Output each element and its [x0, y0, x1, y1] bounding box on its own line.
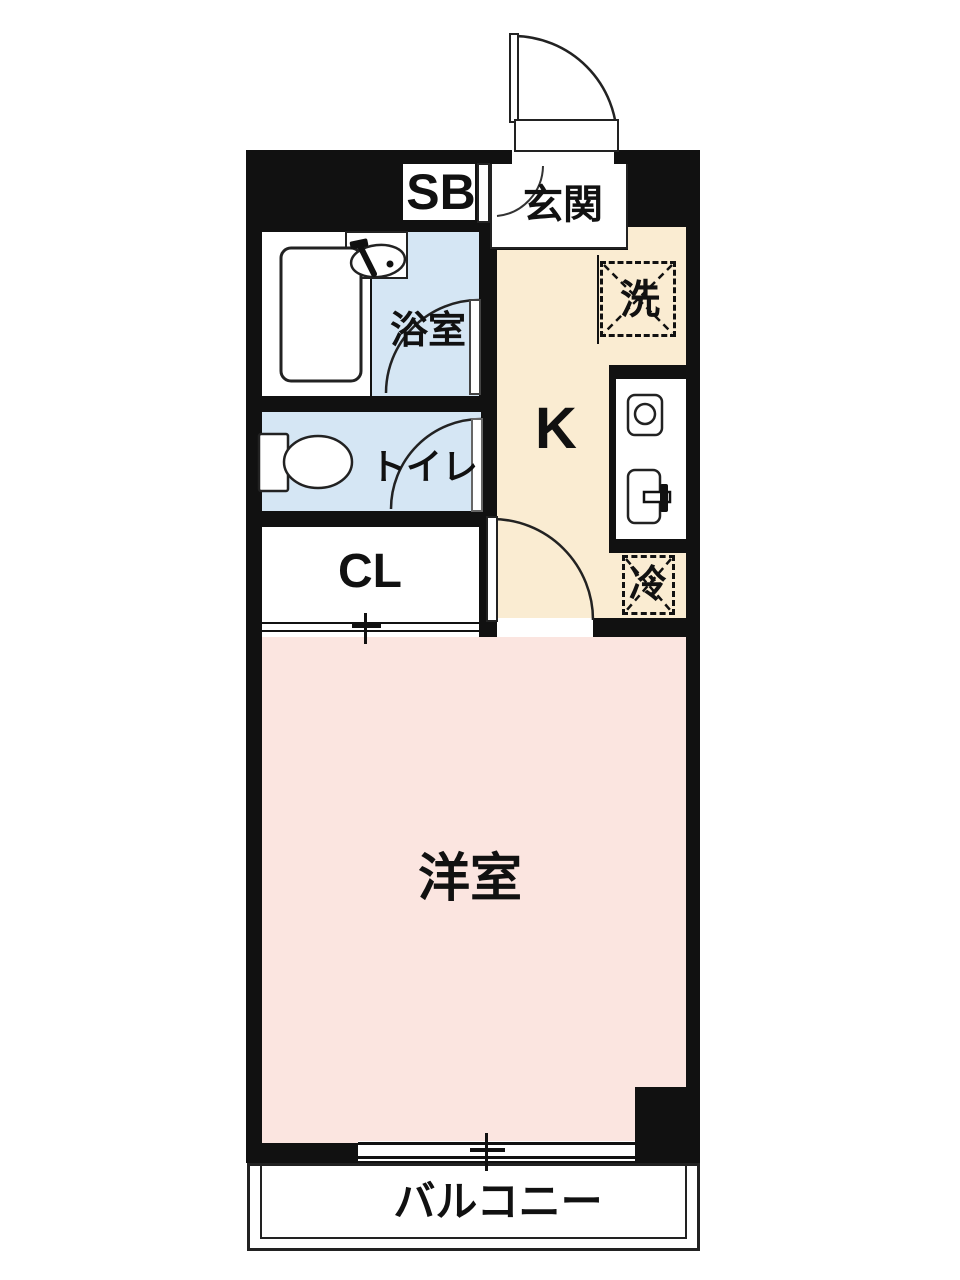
- entrance-door-arc: [514, 36, 617, 140]
- western-room-label: 洋室: [418, 853, 522, 905]
- kitchen-label: K: [535, 400, 577, 458]
- window-track: [358, 1156, 635, 1159]
- entrance-label: 玄関: [523, 185, 603, 225]
- closet-slider-track: [262, 630, 479, 632]
- bath-partition-line: [370, 277, 372, 396]
- washbasin-counter: [345, 231, 408, 279]
- bathroom-label: 浴室: [390, 312, 466, 350]
- shoe-box-side-panel: [477, 163, 490, 223]
- kitchen-counter-top: [616, 379, 686, 539]
- washer-label: 洗: [620, 280, 660, 320]
- closet-label: CL: [338, 548, 402, 596]
- entrance-door-opening: [512, 150, 614, 165]
- closet-slider-mullion: [364, 613, 367, 644]
- room-doorway: [497, 618, 593, 637]
- balcony-label: バルコニー: [393, 1181, 602, 1223]
- toilet-label: トイレ: [370, 449, 478, 485]
- shoe-box-label: SB: [406, 167, 475, 217]
- window-track: [358, 1142, 635, 1145]
- fridge-label: 冷: [629, 566, 667, 604]
- entrance-door-leaf: [510, 34, 518, 122]
- window-mullion: [485, 1133, 488, 1171]
- floor-plan: SB 玄関 浴室 トイレ CL K 洗 冷 洋室 バルコニー: [0, 0, 960, 1280]
- washer-partition-line: [597, 255, 599, 344]
- entrance-threshold: [515, 120, 618, 151]
- wall-notch: [635, 1087, 686, 1143]
